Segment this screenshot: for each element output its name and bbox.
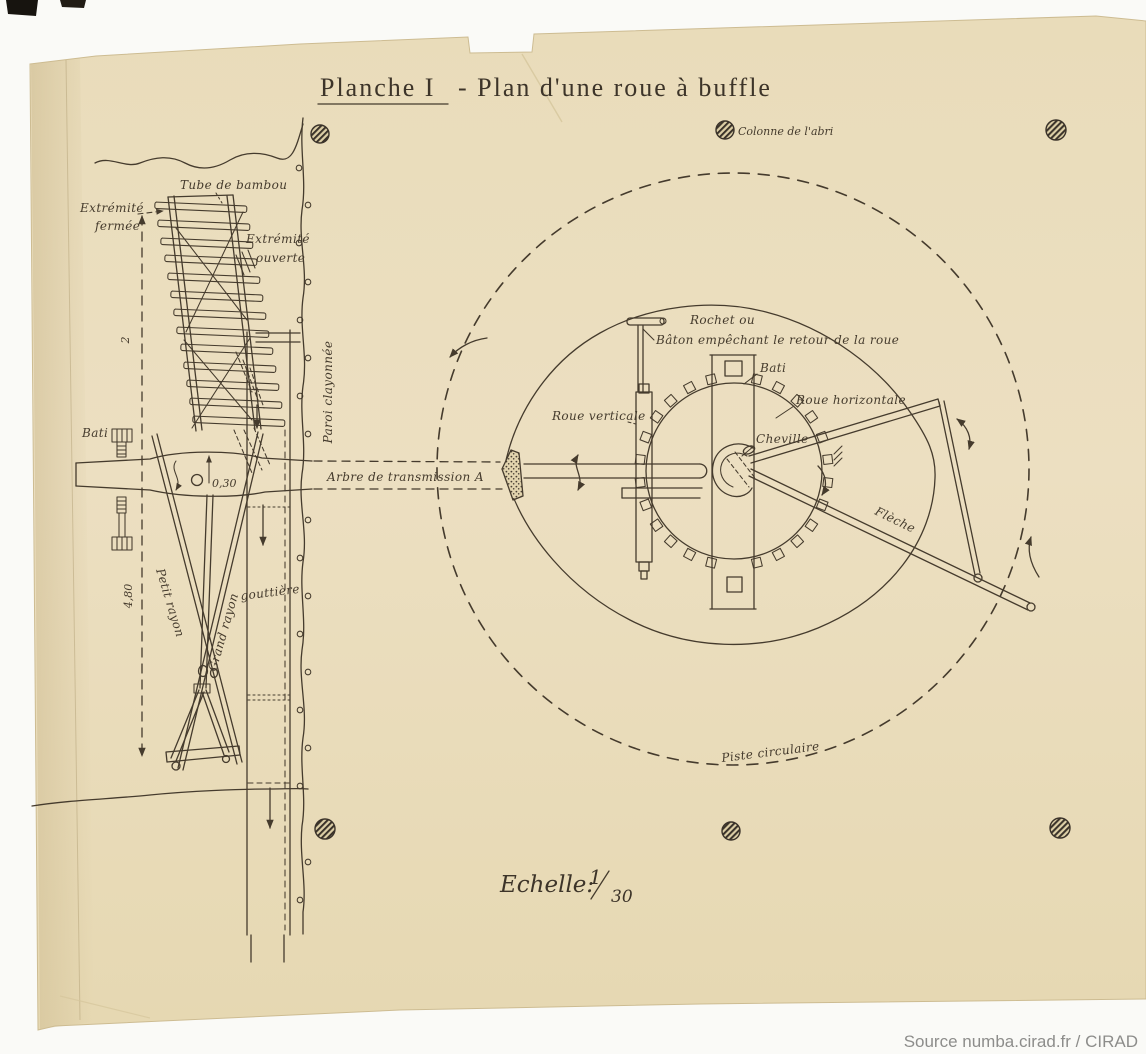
- column-mark-icon: [716, 121, 734, 139]
- scale-denominator: 30: [611, 887, 633, 907]
- label-cheville: Cheville: [756, 432, 809, 446]
- scan-viewport: Planche I - Plan d'une roue à buffle Col…: [0, 0, 1146, 1054]
- label-extremite-fermee-1: Extrémité: [79, 201, 144, 215]
- label-extremite-ouverte-2: ouverte: [256, 251, 305, 265]
- label-bati-right: Bati: [759, 361, 786, 375]
- plate-title: Planche I - Plan d'une roue à buffle: [318, 73, 772, 104]
- label-dim-2: 2: [119, 337, 132, 345]
- column-mark-icon: [722, 822, 740, 840]
- column-mark-icon: [1046, 120, 1066, 140]
- label-rochet-2: Bâton empêchant le retour de la roue: [655, 333, 899, 347]
- label-extremite-fermee-2: fermée: [94, 219, 140, 233]
- label-roue-horizontale: Roue horizontale: [795, 393, 906, 407]
- source-attribution: Source numba.cirad.fr / CIRAD: [904, 1032, 1138, 1051]
- column-mark-icon: [315, 819, 335, 839]
- label-colonne-abri: Colonne de l'abri: [738, 125, 833, 138]
- label-paroi-clayonnee: Paroi clayonnée: [321, 341, 335, 445]
- scale-label: Echelle:: [499, 872, 594, 898]
- label-diametre: 0,30: [212, 477, 237, 490]
- column-mark-icon: [311, 125, 329, 143]
- label-dim-480: 4,80: [122, 584, 135, 610]
- title-part1: Planche I: [320, 73, 435, 102]
- binding-corner: [60, 0, 86, 8]
- label-roue-verticale: Roue verticale: [551, 409, 646, 423]
- title-part2: - Plan d'une roue à buffle: [458, 73, 772, 102]
- scanned-plate: Planche I - Plan d'une roue à buffle Col…: [0, 0, 1146, 1054]
- label-tube-bambou: Tube de bambou: [180, 178, 287, 192]
- label-rochet-1: Rochet ou: [689, 313, 755, 327]
- label-bati-left: Bati: [81, 426, 108, 440]
- label-arbre: Arbre de transmission A: [326, 470, 484, 484]
- label-extremite-ouverte-1: Extrémité: [245, 232, 310, 246]
- binding-corner: [6, 0, 38, 16]
- column-mark-icon: [1050, 818, 1070, 838]
